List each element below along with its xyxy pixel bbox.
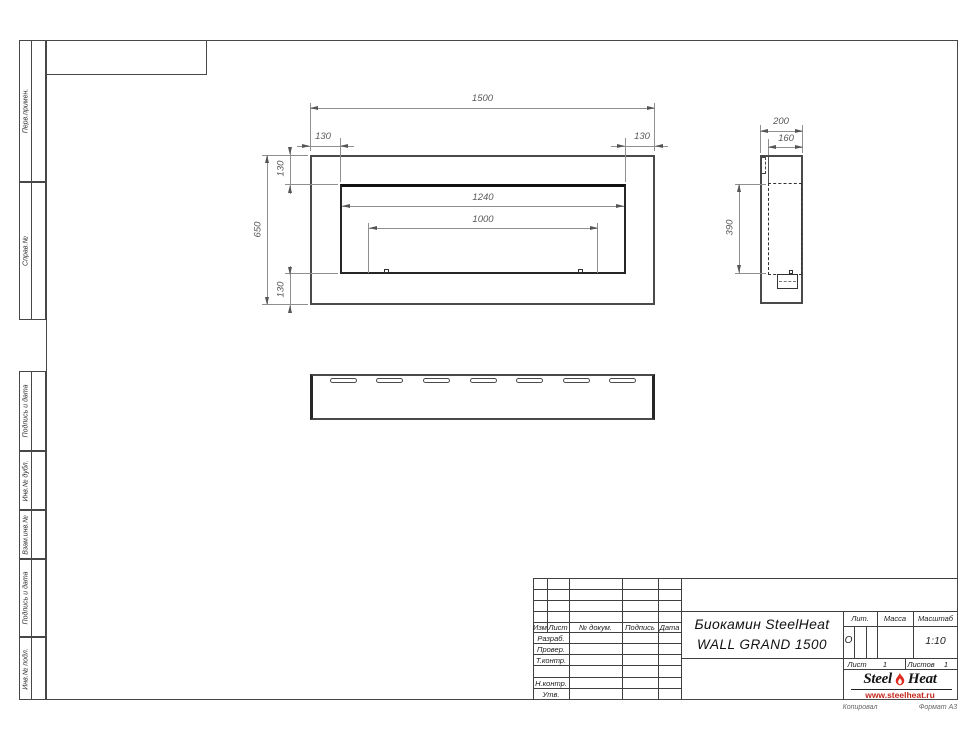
arrowhead: [590, 226, 598, 230]
dim-opening-width: 1240: [455, 192, 511, 203]
arrowhead: [288, 267, 292, 275]
margin-divider: [31, 511, 32, 558]
dim-line: [368, 228, 598, 229]
title-block-line: [866, 626, 867, 658]
dim-line: [739, 184, 740, 273]
burner-tab-right: [578, 269, 583, 273]
lit-value: О: [843, 635, 854, 646]
margin-cell-inv-dubl: Инв.№ дубл.: [19, 451, 46, 510]
arrowhead: [617, 144, 625, 148]
sheets-value: 1: [936, 660, 956, 669]
side-view-burner-tab: [789, 270, 793, 274]
arrowhead: [795, 145, 803, 149]
margin-cell-vzam-inv: Взам.инв.№: [19, 510, 46, 559]
title-block-line: [569, 578, 570, 700]
arrowhead: [655, 144, 663, 148]
margin-label: Подпись и дата: [23, 385, 30, 438]
arrowhead: [342, 204, 350, 208]
arrowhead: [616, 204, 624, 208]
title-block-line: [843, 626, 958, 627]
sheet-label: Лист: [845, 660, 869, 669]
title-block-line: [854, 626, 855, 658]
vent-slot: [516, 378, 543, 383]
margin-label: Инв.№ дубл.: [23, 460, 30, 501]
side-view-burner-centerline: [779, 281, 796, 282]
arrowhead: [760, 129, 768, 133]
steelheat-logo: Steel Heat: [846, 669, 954, 690]
vent-slot: [609, 378, 636, 383]
arrowhead: [265, 155, 269, 163]
scale-value: 1:10: [913, 635, 958, 647]
margin-divider: [31, 372, 32, 450]
extension-line: [368, 223, 369, 273]
dim-depth: 200: [759, 116, 803, 127]
document-title: Биокамин SteelHeat: [683, 616, 841, 632]
arrowhead: [310, 106, 318, 110]
arrowhead: [647, 106, 655, 110]
margin-cell-perv-primen: Перв.примен.: [19, 40, 46, 182]
title-block-line: [681, 658, 958, 659]
margin-divider: [31, 452, 32, 509]
extension-line: [735, 273, 766, 274]
scale-label: Масштаб: [913, 614, 958, 623]
format-label: Формат А3: [908, 704, 968, 711]
extension-line: [625, 138, 626, 182]
arrowhead: [737, 265, 741, 273]
extension-line: [285, 184, 338, 185]
arrowhead: [288, 305, 292, 313]
dim-inset-left: 130: [301, 131, 345, 142]
arrowhead: [795, 129, 803, 133]
arrowhead: [737, 184, 741, 192]
arrowhead: [340, 144, 348, 148]
side-view-firebox-hidden: [768, 183, 802, 275]
extension-line: [310, 103, 311, 151]
row-prover: Провер.: [533, 645, 569, 654]
arrowhead: [369, 226, 377, 230]
margin-label: Взам.инв.№: [23, 515, 30, 554]
flame-icon: [893, 671, 907, 688]
burner-tab-left: [384, 269, 389, 273]
row-nkontr: Н.контр.: [533, 679, 569, 688]
dim-inset-bottom: 130: [276, 268, 287, 312]
vent-slot: [376, 378, 403, 383]
drawing-sheet: Перв.примен. Справ.№ Подпись и дата Инв.…: [0, 0, 970, 749]
sheet-value: 1: [869, 660, 901, 669]
extension-line: [597, 223, 598, 273]
title-block-line: [533, 632, 681, 633]
mass-label: Масса: [877, 614, 913, 623]
drawing-frame: [46, 40, 958, 700]
dim-inset-right: 130: [620, 131, 664, 142]
margin-cell-sprav-no: Справ.№: [19, 182, 46, 320]
arrowhead: [288, 185, 292, 193]
title-block-line: [658, 578, 659, 700]
title-block-line: [843, 611, 844, 700]
title-block-line: [533, 600, 681, 601]
title-block-line: [533, 654, 681, 655]
col-doc: № докум.: [569, 623, 622, 632]
vent-slot: [423, 378, 450, 383]
margin-label: Перв.примен.: [23, 89, 30, 134]
col-date: Дата: [658, 623, 681, 632]
title-block-line: [533, 611, 958, 612]
row-tkontr: Т.контр.: [533, 656, 569, 665]
row-razrab: Разраб.: [533, 634, 569, 643]
title-block-line: [533, 688, 681, 689]
col-izm: Изм.: [533, 623, 547, 632]
title-block-line: [533, 643, 681, 644]
vent-slot: [470, 378, 497, 383]
arrowhead: [302, 144, 310, 148]
margin-divider: [31, 560, 32, 636]
copied-label: Копировал: [830, 704, 890, 711]
title-block-line: [533, 589, 681, 590]
logo-steel-text: Steel: [863, 671, 892, 688]
lit-label: Лит.: [843, 614, 877, 623]
side-view-bracket: [761, 157, 766, 174]
margin-divider: [31, 638, 32, 699]
title-block-line: [533, 578, 958, 579]
col-sign: Подпись: [622, 623, 658, 632]
title-block-line: [622, 578, 623, 700]
arrowhead: [768, 145, 776, 149]
dim-inner-depth: 160: [764, 133, 808, 144]
margin-label: Подпись и дата: [23, 572, 30, 625]
margin-cell-podpis-data-2: Подпись и дата: [19, 559, 46, 637]
dim-burner-spacing: 1000: [455, 214, 511, 225]
title-block-line: [533, 665, 681, 666]
dim-line: [267, 155, 268, 305]
dim-opening-height: 390: [725, 198, 736, 258]
logo-url: www.steelheat.ru: [846, 690, 954, 700]
top-left-designation-box: [46, 40, 207, 75]
arrowhead: [265, 297, 269, 305]
dim-inset-top: 130: [276, 147, 287, 191]
margin-divider: [31, 183, 32, 319]
row-utv: Утв.: [533, 690, 569, 699]
vent-slot: [330, 378, 357, 383]
title-block-line: [533, 677, 681, 678]
margin-cell-podpis-data-1: Подпись и дата: [19, 371, 46, 451]
dim-line: [310, 108, 655, 109]
logo-heat-text: Heat: [908, 671, 937, 688]
dim-overall-width: 1500: [455, 93, 510, 104]
arrowhead: [288, 147, 292, 155]
extension-line: [285, 273, 338, 274]
dim-line: [342, 206, 624, 207]
sheets-label: Листов: [906, 660, 936, 669]
title-block-line: [681, 578, 682, 700]
col-list: Лист: [547, 623, 569, 632]
margin-label: Справ.№: [23, 236, 30, 266]
document-subtitle: WALL GRAND 1500: [683, 637, 841, 652]
margin-divider: [31, 41, 32, 181]
side-view-inner-wall: [768, 157, 769, 184]
dim-overall-height: 650: [253, 200, 264, 260]
margin-cell-inv-podl: Инв.№ подл.: [19, 637, 46, 700]
margin-label: Инв.№ подл.: [23, 648, 30, 690]
vent-slot: [563, 378, 590, 383]
